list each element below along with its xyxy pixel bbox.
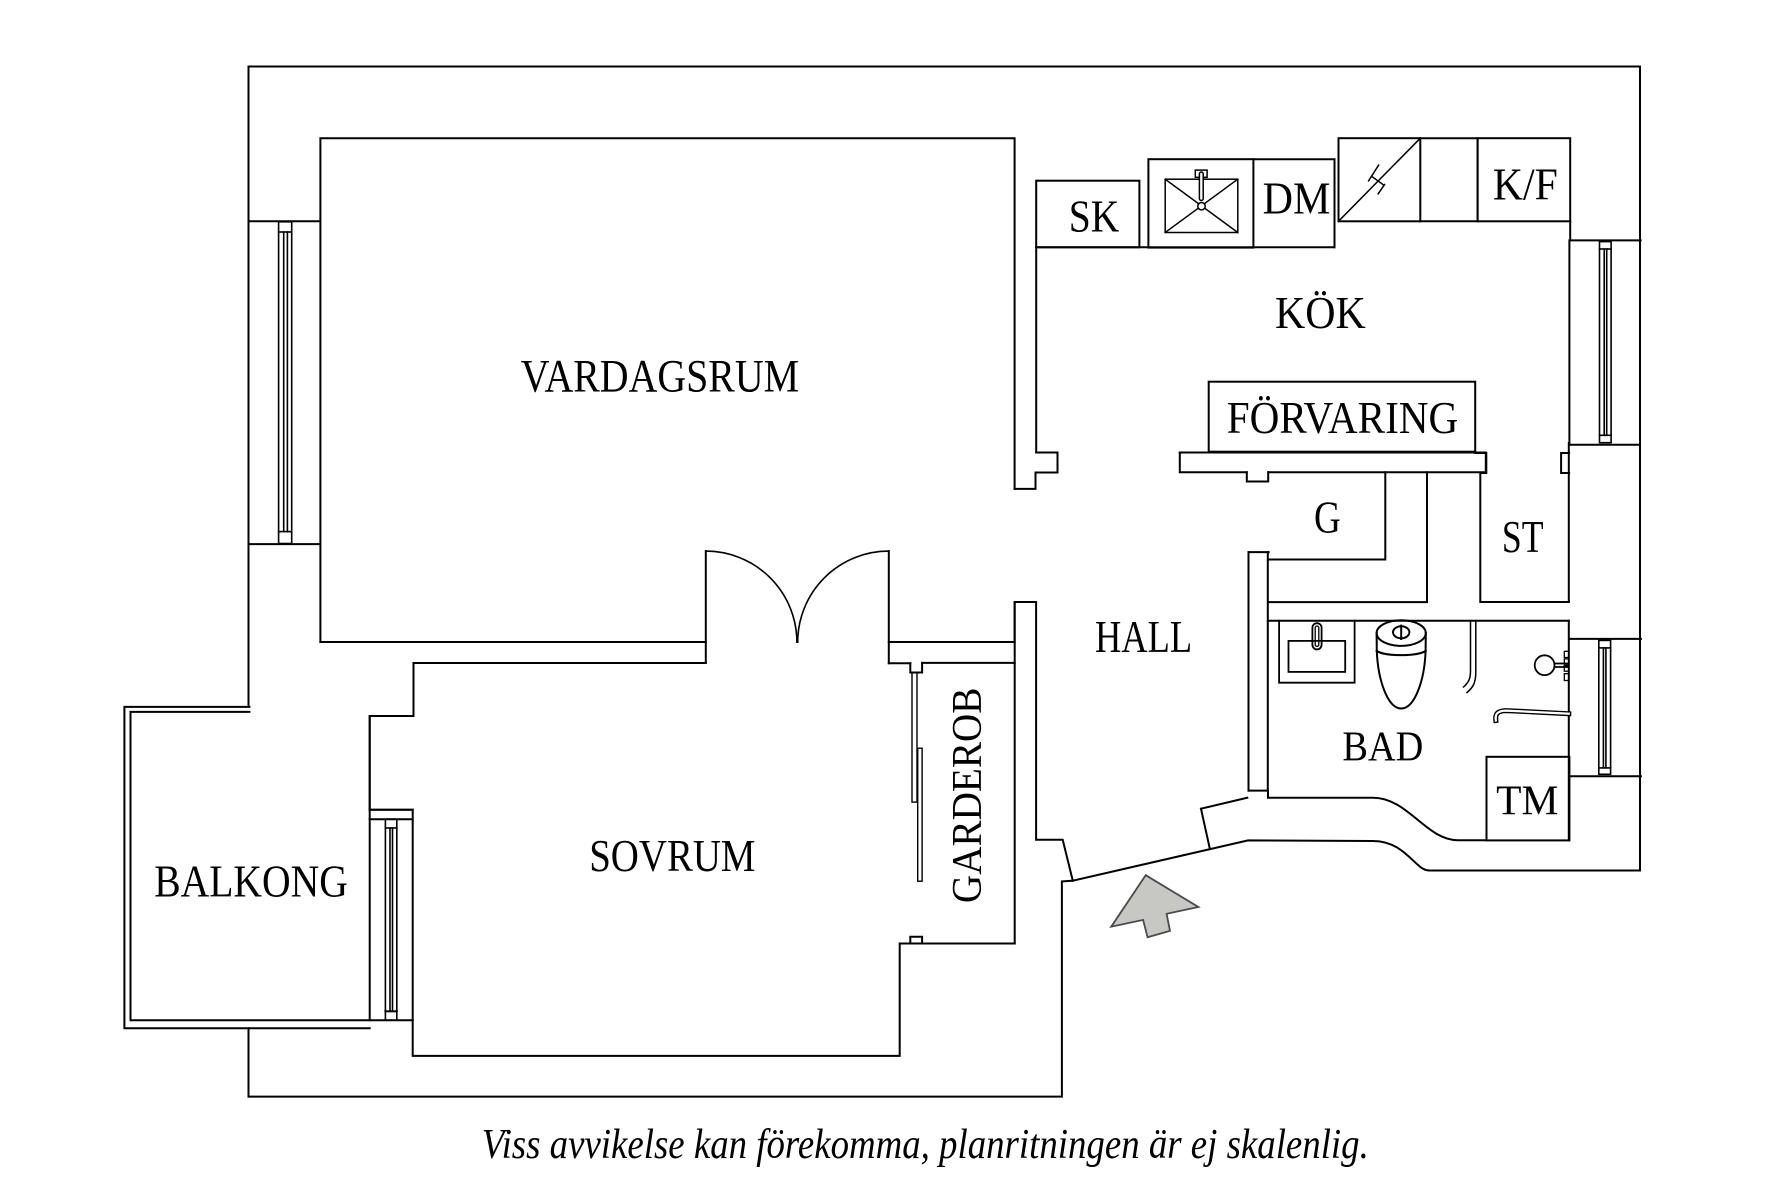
svg-text:ST: ST — [1502, 511, 1544, 562]
svg-text:Viss avvikelse kan förekomma,: Viss avvikelse kan förekomma, planritnin… — [482, 1122, 1369, 1168]
svg-text:SK: SK — [1069, 191, 1120, 242]
svg-text:KÖK: KÖK — [1275, 287, 1366, 338]
svg-text:SOVRUM: SOVRUM — [589, 830, 755, 881]
svg-text:K/F: K/F — [1493, 158, 1558, 209]
svg-text:TM: TM — [1496, 779, 1558, 825]
svg-text:GARDEROB: GARDEROB — [945, 688, 991, 904]
svg-text:G: G — [1314, 492, 1341, 543]
svg-text:BALKONG: BALKONG — [154, 856, 348, 907]
svg-text:HALL: HALL — [1095, 611, 1192, 662]
svg-text:FÖRVARING: FÖRVARING — [1227, 392, 1458, 443]
svg-text:DM: DM — [1263, 173, 1331, 224]
svg-text:VARDAGSRUM: VARDAGSRUM — [521, 351, 799, 403]
svg-text:BAD: BAD — [1342, 725, 1423, 771]
